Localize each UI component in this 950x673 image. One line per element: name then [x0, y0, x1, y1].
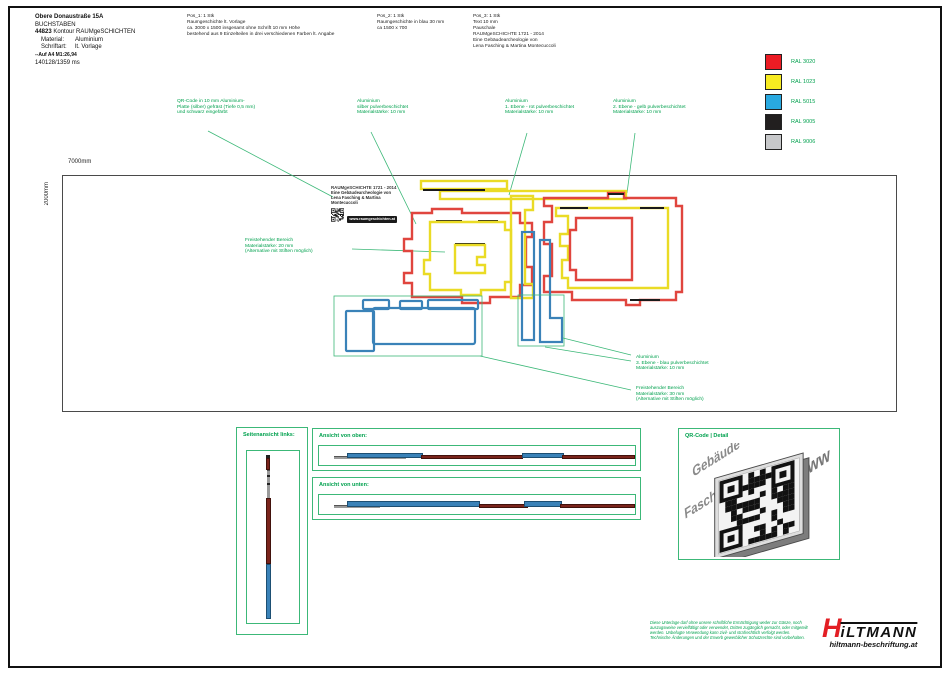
position-3: Pos_3: 1 Stk Text 10 mmPauschaleRAUMgeSC… — [473, 14, 556, 49]
color-swatch-yellow — [765, 74, 782, 90]
side-bar-tick — [267, 483, 270, 485]
font-label: Schriftart: — [41, 44, 75, 52]
bottom-view-red-bar-2 — [560, 504, 635, 508]
material-row: Material:Aluminium — [35, 37, 135, 45]
text-line: ca 1500 x 700 — [377, 26, 444, 32]
position-lines: Raumgeschichte in blau 30 mmca 1500 x 70… — [377, 20, 444, 32]
panel-qr-detail: QR-Code | Detail Gebäude Fasching www — [678, 428, 840, 560]
height-dimension: 2000mm — [44, 182, 50, 205]
text-line: Materialstärke: 10 mm — [357, 110, 408, 116]
panel-side-view-label: Seitenansicht links: — [243, 432, 295, 438]
font-row: Schriftart:lt. Vorlage — [35, 44, 135, 52]
panel-top-view: Ansicht von oben: — [312, 428, 641, 471]
text-line: Materialstärke: 10 mm — [636, 366, 709, 372]
panel-bottom-view-inner — [318, 494, 636, 515]
legend-label: RAL 3020 — [791, 59, 815, 65]
annotation-free-20mm: Freistehender BereichMaterialstärke: 20 … — [245, 238, 313, 255]
top-view-red-bar-2 — [562, 455, 635, 459]
qr-code-small — [331, 207, 344, 223]
position-lines: Text 10 mmPauschaleRAUMgeSCHICHTE 1721 -… — [473, 20, 556, 50]
panel-top-view-inner — [318, 445, 636, 466]
artwork-authors: Lena Fasching & Martina Montecuccoli — [331, 196, 397, 206]
annotation-free-30mm: Freistehender BereichMaterialstärke: 30 … — [636, 386, 704, 403]
font-value: lt. Vorlage — [75, 44, 102, 50]
legend-row: RAL 9006 — [765, 134, 815, 150]
annotation-alu-silver: Aluminiumsilber pulverbeschichtetMateria… — [357, 99, 408, 116]
material-value: Aluminium — [75, 37, 103, 43]
title-block: Obere Donaustraße 15A BUCHSTABEN 44823 K… — [35, 14, 135, 67]
text-line: Technische Änderungen und der Erwerb gew… — [650, 635, 808, 640]
legend-row: RAL 3020 — [765, 54, 815, 70]
legend-label: RAL 5015 — [791, 99, 815, 105]
logo-url: hiltmann-beschriftung.at — [822, 640, 917, 649]
position-1: Pos_1: 1 Stk Raumgeschichte lt. Vorlagec… — [187, 14, 334, 38]
text-line: und schwarz eingefärbt — [177, 110, 255, 116]
side-bar-tick — [267, 475, 270, 477]
artwork-url: www.raumgeschichten.at — [347, 216, 397, 223]
material-label: Material: — [41, 37, 75, 45]
top-view-red-bar-1 — [421, 455, 523, 459]
text-line: bestehend aus 9 Einzelteilen in drei ver… — [187, 32, 334, 38]
panel-qr-detail-label: QR-Code | Detail — [685, 433, 728, 439]
annotation-alu-yellow: Aluminium2. Ebene - gelb pulverbeschicht… — [613, 99, 686, 116]
panel-side-view: Seitenansicht links: — [236, 427, 308, 635]
bottom-view-blue-bar-1 — [347, 501, 480, 507]
order-number: 44823 — [35, 29, 52, 35]
panel-bottom-view-label: Ansicht von unten: — [319, 482, 369, 488]
footer-disclaimer: Diese Unterlage darf ohne unsere schrift… — [650, 620, 808, 640]
drawing-sheet: Obere Donaustraße 15A BUCHSTABEN 44823 K… — [0, 0, 950, 673]
ral-legend: RAL 3020 RAL 1023 RAL 5015 RAL 9005 RAL … — [765, 54, 815, 154]
object-type: BUCHSTABEN — [35, 22, 135, 30]
legend-label: RAL 9006 — [791, 139, 815, 145]
text-line: Materialstärke: 10 mm — [505, 110, 574, 116]
drawing-frame — [62, 175, 897, 412]
annotation-alu-red: Aluminium1. Ebene - rot pulverbeschichte… — [505, 99, 574, 116]
text-line: RAUMgeSCHICHTE 1721 - 2014 — [473, 32, 556, 38]
artwork-text-block: RAUMgeSCHICHTE 1721 - 2014 Eine Gebäudea… — [331, 186, 397, 223]
legend-row: RAL 9005 — [765, 114, 815, 130]
panel-top-view-label: Ansicht von oben: — [319, 433, 367, 439]
order-line: 44823 Kontour RAUMgeSCHICHTEN — [35, 29, 135, 37]
top-view-blue-bar-1 — [347, 453, 423, 458]
position-2: Pos_2: 1 Stk Raumgeschichte in blau 30 m… — [377, 14, 444, 32]
color-swatch-red — [765, 54, 782, 70]
position-lines: Raumgeschichte lt. Vorlageca. 3000 x 150… — [187, 20, 334, 38]
qr-plate — [715, 451, 809, 557]
scale-note: --Auf A4 M1:26,94 — [35, 52, 135, 60]
legend-row: RAL 1023 — [765, 74, 815, 90]
text-line: Materialstärke: 10 mm — [613, 110, 686, 116]
text-line: Lena Fasching & Martina Montecuccoli — [473, 44, 556, 50]
top-view-blue-bar-2 — [522, 453, 564, 458]
width-dimension: 7000mm — [68, 159, 91, 165]
legend-label: RAL 9005 — [791, 119, 815, 125]
address: Obere Donaustraße 15A — [35, 14, 135, 22]
text-line: QR-Code in 10 mm Aluminium- — [177, 99, 255, 105]
text-line: (Alternative mit Stiften möglich) — [245, 249, 313, 255]
color-swatch-silver — [765, 134, 782, 150]
bottom-view-blue-bar-2 — [524, 501, 562, 507]
legend-label: RAL 1023 — [791, 79, 815, 85]
side-bar-blue — [266, 564, 271, 619]
order-title: Kontour RAUMgeSCHICHTEN — [53, 29, 135, 35]
panel-side-view-inner — [246, 450, 300, 624]
logo-letter-h: H — [822, 613, 841, 643]
qr-3d-render: Gebäude Fasching www — [681, 443, 837, 557]
side-bar-red-top — [266, 458, 270, 470]
company-logo: HiLTMANN hiltmann-beschriftung.at — [822, 613, 917, 649]
legend-row: RAL 5015 — [765, 94, 815, 110]
panel-bottom-view: Ansicht von unten: — [312, 477, 641, 520]
bottom-view-red-bar-1 — [479, 504, 528, 508]
annotation-qr-code: QR-Code in 10 mm Aluminium-Platte (silbe… — [177, 99, 255, 116]
text-line: (Alternative mit Stiften möglich) — [636, 397, 704, 403]
job-reference: 140128/1359 ms — [35, 60, 135, 68]
color-swatch-blue — [765, 94, 782, 110]
side-bar-red-long — [266, 498, 271, 564]
color-swatch-black — [765, 114, 782, 130]
annotation-alu-blue: Aluminium3. Ebene - blau pulverbeschicht… — [636, 355, 709, 372]
logo-rest: iLTMANN — [841, 624, 918, 641]
text-line: Raumgeschichte in blau 30 mm — [377, 20, 444, 26]
